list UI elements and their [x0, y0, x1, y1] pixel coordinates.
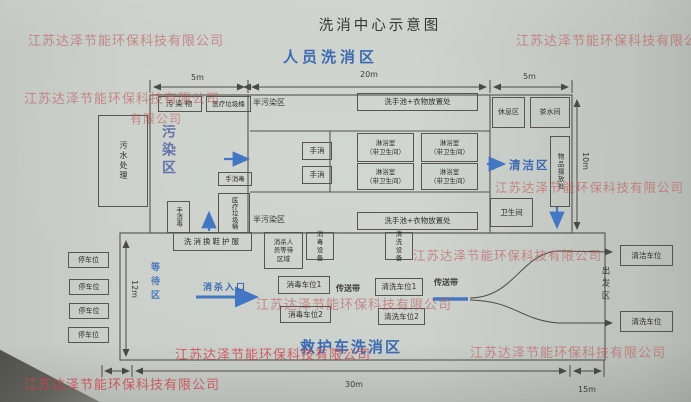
parking-spot-3: 停车位	[69, 303, 109, 319]
room-shower-1: 淋浴室 （带卫生间）	[357, 133, 414, 162]
room-staff-waiting: 消杀人员等待区域	[264, 232, 303, 269]
parking-spot-4: 停车位	[68, 327, 109, 343]
room-items-storage: 物品摆放处	[550, 136, 570, 207]
bay-clean-exit-top: 清洁车位	[620, 245, 673, 266]
dim-bottom-30m: 30m	[345, 380, 363, 389]
room-toilet: 卫生间	[490, 198, 533, 227]
shower-label: 淋浴室	[440, 168, 460, 176]
room-hand-wash-2: 手消	[302, 166, 332, 184]
parking-spot-1: 停车位	[68, 252, 109, 268]
shower-sublabel: （带卫生间）	[430, 148, 469, 156]
dim-height-10m: 10m	[581, 152, 590, 170]
room-medical-waste-bin-mid: 医疗垃圾桶	[218, 193, 250, 233]
room-wash-equipment: 清洗设备	[385, 232, 413, 260]
room-shower-2: 淋浴室 （带卫生间）	[421, 133, 478, 162]
zone-semi-contaminated-top: 半污染区	[253, 97, 285, 108]
room-hand-disinfect-mid: 手消毒	[218, 172, 252, 186]
dim-right-5m: 5m	[523, 72, 536, 81]
shower-label: 淋浴室	[376, 139, 396, 147]
zone-semi-contaminated-bottom: 半污染区	[253, 214, 285, 225]
room-shower-3: 淋浴室 （带卫生间）	[357, 163, 414, 190]
dim-left-height-12m: 12m	[130, 280, 139, 298]
shower-sublabel: （带卫生间）	[366, 177, 405, 185]
dim-middle-20m: 20m	[360, 70, 378, 79]
room-disinfect-equipment: 消毒设备	[306, 232, 334, 260]
bay-wash-2: 清洗车位2	[378, 308, 425, 325]
dim-bottom-15m: 15m	[578, 385, 596, 394]
personnel-area-heading: 人员洗消区	[283, 46, 378, 67]
ambulance-area-heading: 救护车洗消区	[300, 336, 402, 357]
bay-disinfect-1: 消毒车位1	[278, 276, 330, 294]
shower-sublabel: （带卫生间）	[366, 148, 405, 156]
bay-clean-exit-bottom: 清洗车位	[620, 311, 673, 332]
bay-disinfect-2: 消毒车位2	[280, 306, 331, 323]
room-wash-basin-top: 洗手池+衣物放置处	[357, 93, 478, 111]
room-sewage-treatment: 污水处理	[98, 115, 148, 207]
room-rest-area: 休息区	[492, 97, 525, 128]
label-departure-zone: 出发区	[599, 266, 611, 304]
bay-wash-1: 清洗车位1	[375, 278, 423, 296]
label-waiting-zone: 等待区	[148, 262, 161, 304]
room-hand-disinfect-left: 手消毒	[167, 201, 190, 233]
label-disinfect-entrance: 消杀入口	[203, 280, 247, 293]
label-conveyor-1: 传送带	[336, 283, 360, 294]
room-hand-wash-1: 手消	[302, 142, 332, 160]
zone-clean: 清洁区	[509, 157, 550, 173]
label-conveyor-2: 传送带	[434, 277, 458, 288]
shower-label: 淋浴室	[376, 168, 396, 176]
room-tea-room: 茶水间	[530, 97, 570, 128]
room-wash-basin-bottom: 洗手池+衣物放置处	[357, 212, 478, 230]
shower-label: 淋浴室	[440, 139, 460, 147]
room-pollutant: 污染物	[158, 96, 202, 112]
room-change-row: 洗消换鞋护服	[173, 232, 252, 251]
zone-contaminated: 污染区	[158, 124, 178, 178]
room-medical-waste-bin-top: 医疗垃圾桶	[206, 96, 251, 112]
dim-left-5m: 5m	[191, 73, 204, 82]
room-shower-4: 淋浴室 （带卫生间）	[421, 163, 478, 190]
parking-spot-2: 停车位	[69, 279, 109, 295]
shower-sublabel: （带卫生间）	[430, 177, 469, 185]
page-title: 洗消中心示意图	[270, 14, 490, 35]
